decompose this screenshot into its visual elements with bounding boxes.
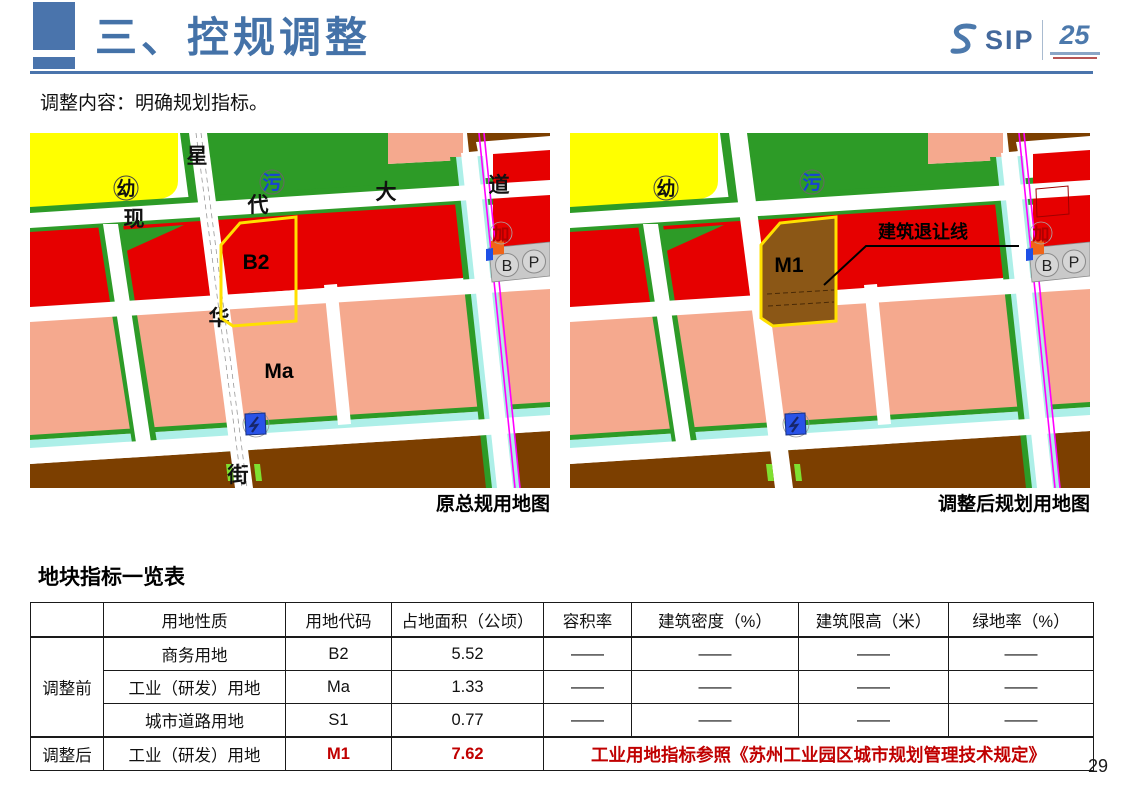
- gas-station-chip: [486, 248, 493, 261]
- cell-height-limit: ——: [799, 671, 949, 704]
- logo-divider: [1042, 20, 1043, 60]
- parking-label: P: [529, 255, 540, 272]
- setback-annotation: 建筑退让线: [878, 221, 968, 242]
- sewage-plant-label: 污: [262, 172, 281, 194]
- bus-label: B: [502, 258, 513, 275]
- page-title: 三、控规调整: [95, 4, 371, 65]
- road-char: 街: [227, 463, 249, 487]
- sip-logo: SIP 25: [948, 12, 1113, 68]
- anniversary-25: 25: [1060, 22, 1090, 49]
- cell-green-rate: ——: [949, 704, 1094, 738]
- table-col-header: 用地代码: [286, 603, 392, 638]
- gas-station-label: 加: [492, 225, 510, 244]
- table-row: 城市道路用地S10.77————————: [31, 704, 1094, 738]
- gas-station-label: 加: [1032, 225, 1050, 244]
- road-char: 现: [124, 208, 145, 231]
- cell-land-nature: 工业（研发）用地: [104, 737, 286, 771]
- title-accent-square: [33, 2, 75, 50]
- cell-land-area: 7.62: [392, 737, 544, 771]
- cell-height-limit: ——: [799, 704, 949, 738]
- cell-green-rate: ——: [949, 637, 1094, 671]
- gas-station-chip: [1026, 248, 1033, 261]
- table-header-row: 用地性质用地代码占地面积（公顷）容积率建筑密度（%）建筑限高（米）绿地率（%）: [31, 603, 1094, 638]
- table-col-header: 用地性质: [104, 603, 286, 638]
- cell-far: ——: [544, 637, 632, 671]
- caption-after: 调整后规划用地图: [570, 489, 1090, 516]
- table-row: 调整后工业（研发）用地M17.62工业用地指标参照《苏州工业园区城市规划管理技术…: [31, 737, 1094, 771]
- cell-land-code: S1: [286, 704, 392, 738]
- cell-density: ——: [632, 671, 799, 704]
- cell-far: ——: [544, 671, 632, 704]
- table-col-header: 占地面积（公顷）: [392, 603, 544, 638]
- table-title: 地块指标一览表: [38, 561, 185, 591]
- map-before: B P 加 污 幼 星 现 代 大 道 华 街 B2 Ma: [30, 133, 550, 488]
- indicator-table-wrap: 用地性质用地代码占地面积（公顷）容积率建筑密度（%）建筑限高（米）绿地率（%） …: [30, 602, 1094, 771]
- road-char: 华: [209, 306, 230, 330]
- cell-height-limit: ——: [799, 637, 949, 671]
- cell-land-code: M1: [286, 737, 392, 771]
- table-row: 工业（研发）用地Ma1.33————————: [31, 671, 1094, 704]
- adjustment-subtitle: 调整内容：明确规划指标。: [40, 88, 268, 115]
- bus-label: B: [1042, 258, 1053, 275]
- cell-land-nature: 工业（研发）用地: [104, 671, 286, 704]
- row-group-label: 调整前: [31, 637, 104, 737]
- cell-density: ——: [632, 704, 799, 738]
- cell-land-nature: 城市道路用地: [104, 704, 286, 738]
- substation-icon: [245, 413, 266, 435]
- table-col-header: 绿地率（%）: [949, 603, 1094, 638]
- header-rule: [30, 71, 1093, 74]
- cell-far: ——: [544, 704, 632, 738]
- table-col-header: 建筑密度（%）: [632, 603, 799, 638]
- cell-land-area: 5.52: [392, 637, 544, 671]
- substation-icon: [785, 413, 806, 435]
- cell-land-area: 1.33: [392, 671, 544, 704]
- cell-density: ——: [632, 637, 799, 671]
- road-char: 星: [187, 145, 208, 168]
- anniversary-underline: [1050, 52, 1100, 55]
- map-base-geometry: [30, 133, 550, 488]
- cell-land-code: B2: [286, 637, 392, 671]
- caption-before: 原总规用地图: [30, 489, 550, 516]
- cell-green-rate: ——: [949, 671, 1094, 704]
- table-col-header: 建筑限高（米）: [799, 603, 949, 638]
- indicator-table: 用地性质用地代码占地面积（公顷）容积率建筑密度（%）建筑限高（米）绿地率（%） …: [30, 602, 1094, 771]
- road-char: 大: [376, 181, 397, 204]
- title-accent-bar: [33, 57, 75, 69]
- kindergarten-label: 幼: [656, 177, 675, 200]
- table-col-header: 容积率: [544, 603, 632, 638]
- cell-land-nature: 商务用地: [104, 637, 286, 671]
- road-char: 代: [247, 194, 269, 217]
- page-number: 29: [1088, 756, 1108, 777]
- ma-parcel-label: Ma: [264, 360, 293, 383]
- road-char: 道: [489, 173, 510, 197]
- anniversary-underline-2: [1053, 57, 1097, 59]
- parking-label: P: [1069, 255, 1080, 272]
- sip-swoosh-icon: [948, 22, 978, 58]
- table-row: 调整前商务用地B25.52————————: [31, 637, 1094, 671]
- row-group-label: 调整后: [31, 737, 104, 771]
- cell-land-area: 0.77: [392, 704, 544, 738]
- sewage-plant-label: 污: [802, 172, 821, 194]
- b2-parcel-label: B2: [243, 251, 270, 274]
- slide: { "header": { "title": "三、控规调整", "logo_t…: [0, 0, 1123, 794]
- map-after: B P 加 污 幼 M1 建筑退让线: [570, 133, 1090, 488]
- sip-logo-text: SIP: [985, 25, 1035, 56]
- m1-parcel-label: M1: [774, 254, 803, 277]
- table-col-header: [31, 603, 104, 638]
- kindergarten-label: 幼: [116, 177, 135, 200]
- anniversary-mark: 25: [1050, 22, 1100, 59]
- cell-land-code: Ma: [286, 671, 392, 704]
- cell-note: 工业用地指标参照《苏州工业园区城市规划管理技术规定》: [544, 737, 1094, 771]
